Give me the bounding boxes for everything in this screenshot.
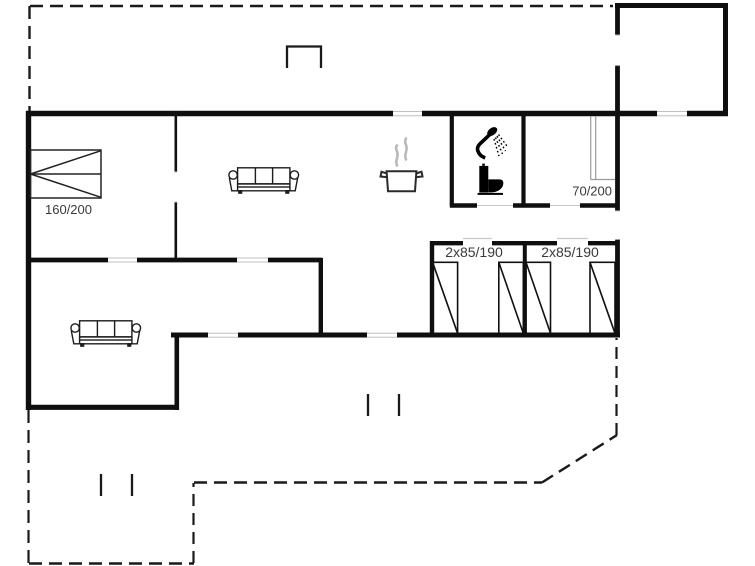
svg-text:2x85/190: 2x85/190: [445, 244, 503, 260]
svg-text:2x85/190: 2x85/190: [541, 244, 599, 260]
svg-text:70/200: 70/200: [572, 184, 612, 199]
svg-text:160/200: 160/200: [45, 202, 92, 217]
